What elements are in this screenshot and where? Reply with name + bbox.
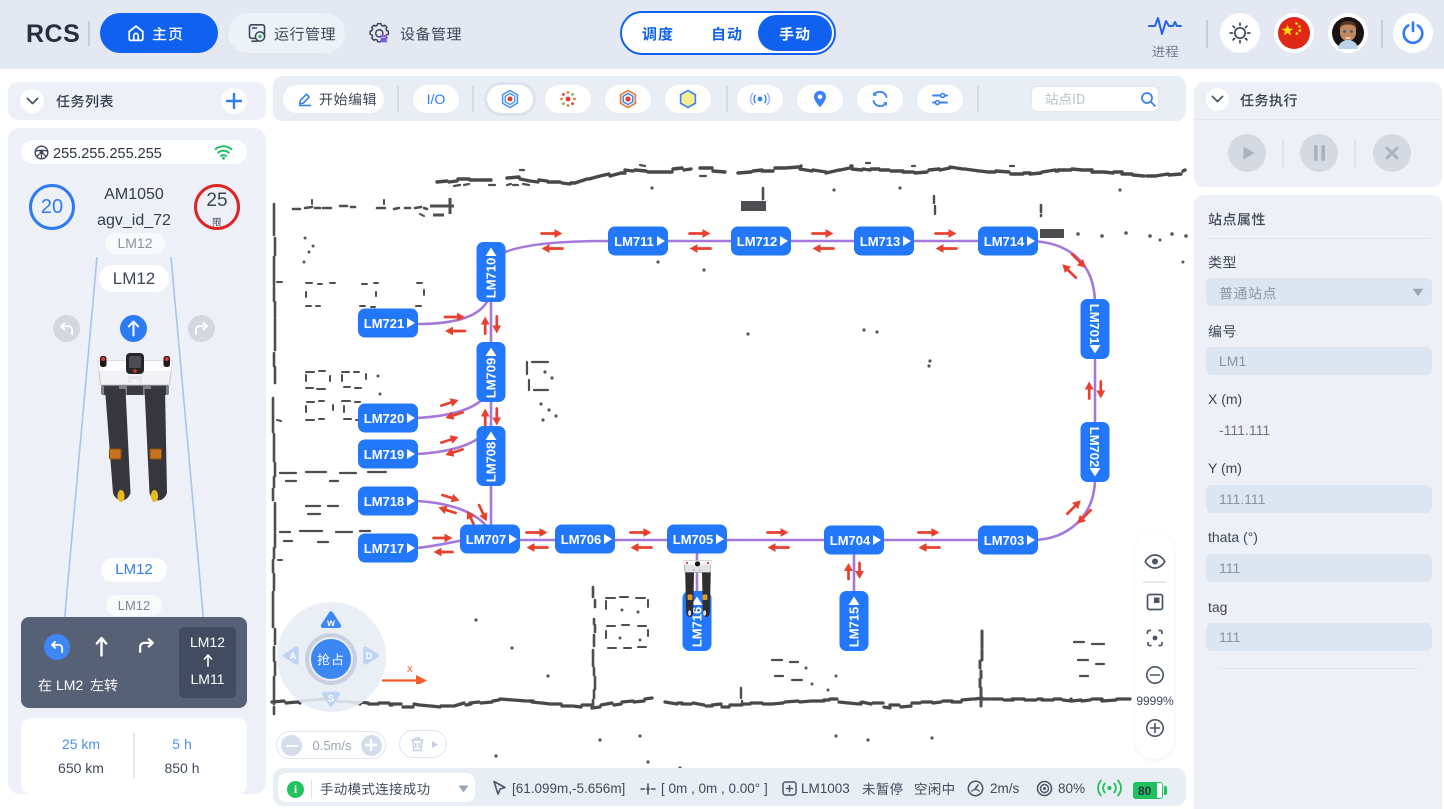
svg-text:w: w [326, 618, 335, 629]
svg-text:LM711: LM711 [614, 234, 654, 249]
svg-text:LM715: LM715 [847, 607, 862, 647]
svg-text:LM717: LM717 [364, 541, 404, 556]
svg-text:LM702: LM702 [1087, 427, 1102, 467]
svg-text:LM714: LM714 [984, 234, 1025, 249]
svg-text:LM701: LM701 [1087, 304, 1102, 344]
svg-text:LM713: LM713 [860, 234, 900, 249]
svg-text:A: A [290, 651, 297, 662]
svg-text:LM708: LM708 [484, 442, 499, 482]
svg-text:LM720: LM720 [364, 411, 404, 426]
svg-text:LM703: LM703 [984, 533, 1024, 548]
svg-text:LM718: LM718 [364, 494, 404, 509]
svg-text:D: D [366, 651, 373, 662]
svg-text:LM710: LM710 [484, 258, 499, 298]
svg-text:x: x [407, 663, 413, 675]
svg-text:LM704: LM704 [830, 533, 871, 548]
svg-text:LM709: LM709 [484, 358, 499, 398]
svg-text:LM712: LM712 [737, 234, 777, 249]
svg-text:LM707: LM707 [466, 532, 506, 547]
svg-text:LM719: LM719 [364, 447, 404, 462]
svg-text:S: S [328, 694, 334, 705]
svg-text:LM721: LM721 [364, 316, 404, 331]
svg-text:LM705: LM705 [673, 532, 713, 547]
svg-text:LM706: LM706 [561, 532, 601, 547]
